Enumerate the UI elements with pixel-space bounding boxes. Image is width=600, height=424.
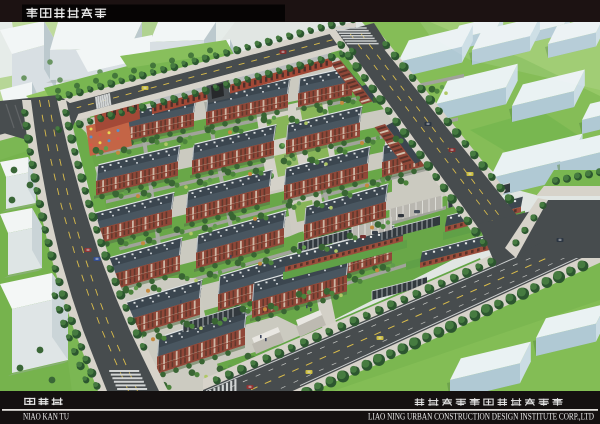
svg-text:NIAO KAN TU: NIAO KAN TU	[23, 413, 69, 423]
svg-text:LIAO NING URBAN CONSTRUCTION D: LIAO NING URBAN CONSTRUCTION DESIGN INST…	[368, 412, 594, 422]
